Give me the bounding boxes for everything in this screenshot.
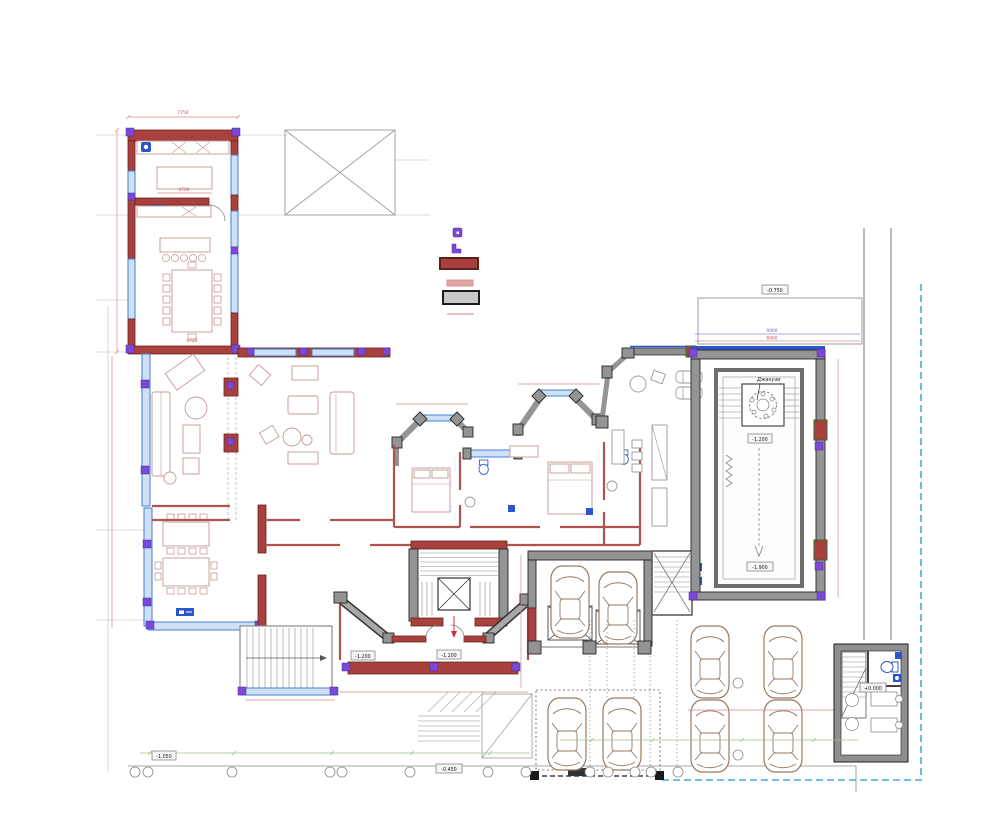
terrace (698, 298, 862, 344)
masonry-wall-swatch (440, 258, 478, 269)
axis-bubble (733, 678, 743, 688)
floor-marker (895, 652, 902, 659)
dining-room-lower (143, 505, 266, 630)
round-table (630, 376, 646, 392)
floor-marker (586, 508, 593, 515)
room-tag (176, 608, 194, 616)
site-dimensions: -1.050 -0.450 (130, 738, 858, 777)
elevator (438, 578, 470, 610)
elevation-tag: -1.200 (351, 651, 375, 660)
dim-kitchen-island: 4700 (178, 187, 189, 193)
car (691, 700, 729, 772)
dining-table (163, 558, 209, 586)
stool (846, 694, 859, 707)
dining-table (163, 522, 209, 546)
chair (896, 722, 903, 729)
svg-text:-1.200: -1.200 (441, 653, 456, 659)
floor-plan-sheet: 4700 4725 (0, 0, 1000, 838)
car (603, 698, 641, 770)
svg-text:+0.000: +0.000 (864, 686, 882, 692)
partition-wall-swatch (447, 280, 473, 286)
point-marker-square-icon (453, 228, 462, 237)
lounge (596, 346, 702, 585)
elevation-tag: -1.900 (747, 562, 773, 571)
toilet-icon (881, 662, 898, 673)
svg-text:-1.200: -1.200 (752, 437, 767, 443)
exterior-stair (238, 626, 338, 695)
bedroom-1 (392, 404, 473, 527)
canopy-above (285, 130, 395, 215)
jacuzzi (742, 384, 784, 426)
axis-bubble (733, 750, 743, 760)
kitchen-dining-wing: 4700 4725 (126, 128, 240, 354)
sink-icon (607, 481, 617, 491)
grand-piano (165, 354, 204, 390)
garage-stair (652, 551, 692, 615)
jacuzzi-callout: Джакузи (756, 377, 781, 383)
car (599, 572, 637, 644)
dim-pool-lower: 8400 (766, 336, 777, 342)
elevation-tag: -1.050 (152, 751, 176, 760)
svg-text:-1.050: -1.050 (156, 754, 171, 760)
guard-house: +0.000 (834, 644, 908, 762)
dim-pool-upper: 9400 (766, 328, 777, 334)
dim-dining: 4725 (186, 338, 197, 344)
elevation-tag: -1.200 (437, 650, 461, 659)
desk (871, 692, 897, 706)
elevation-tag: -0.750 (762, 285, 788, 294)
car (764, 700, 802, 772)
svg-text:-1.200: -1.200 (355, 654, 370, 660)
armchair (249, 364, 270, 385)
tv-unit (292, 366, 318, 380)
legend (440, 228, 479, 314)
svg-text:-0.750: -0.750 (767, 288, 782, 294)
desk (871, 718, 897, 732)
concrete-wall-swatch (443, 291, 479, 304)
stool (846, 718, 859, 731)
elevation-tag: -0.450 (436, 764, 462, 773)
sofa (330, 392, 354, 454)
living-room (141, 348, 390, 520)
bedroom-2 (510, 384, 604, 545)
car (764, 626, 802, 698)
car (551, 566, 589, 638)
kitchen-sink-icon (141, 142, 151, 152)
svg-text:-1.900: -1.900 (752, 565, 767, 571)
car (548, 698, 586, 770)
round-table (185, 397, 207, 419)
elevation-tag: -1.200 (748, 434, 772, 443)
direction-arrow (451, 631, 457, 638)
sink-icon (465, 497, 475, 507)
dining-table (172, 270, 212, 332)
stair-core (409, 541, 508, 638)
chair (896, 696, 903, 703)
floor-plan-drawing: 4700 4725 (0, 0, 1000, 838)
pool-hall: Джакузи -1.200 -1.900 -0.750 9400 8400 (689, 285, 862, 600)
site-fence (864, 228, 891, 640)
garage (528, 551, 692, 654)
floor-marker (508, 505, 515, 512)
elevation-tag: +0.000 (860, 683, 886, 692)
car (691, 626, 729, 698)
toilet-icon (479, 460, 488, 474)
svg-text:-0.450: -0.450 (441, 767, 456, 773)
point-marker-corner-icon (452, 244, 461, 253)
drain-icon (893, 674, 901, 682)
dim-kitchen-wing: 7750 (177, 110, 188, 116)
